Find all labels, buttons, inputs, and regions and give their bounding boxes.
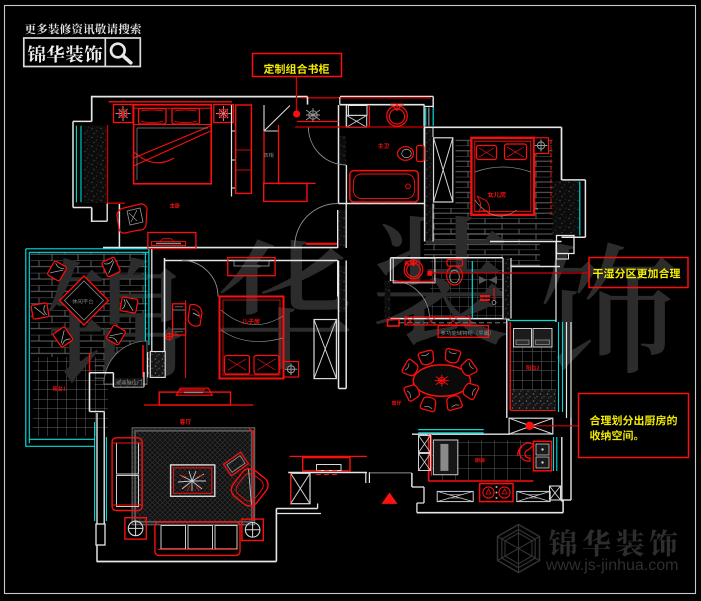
svg-text:www.js-jinhua.com: www.js-jinhua.com: [545, 557, 678, 574]
